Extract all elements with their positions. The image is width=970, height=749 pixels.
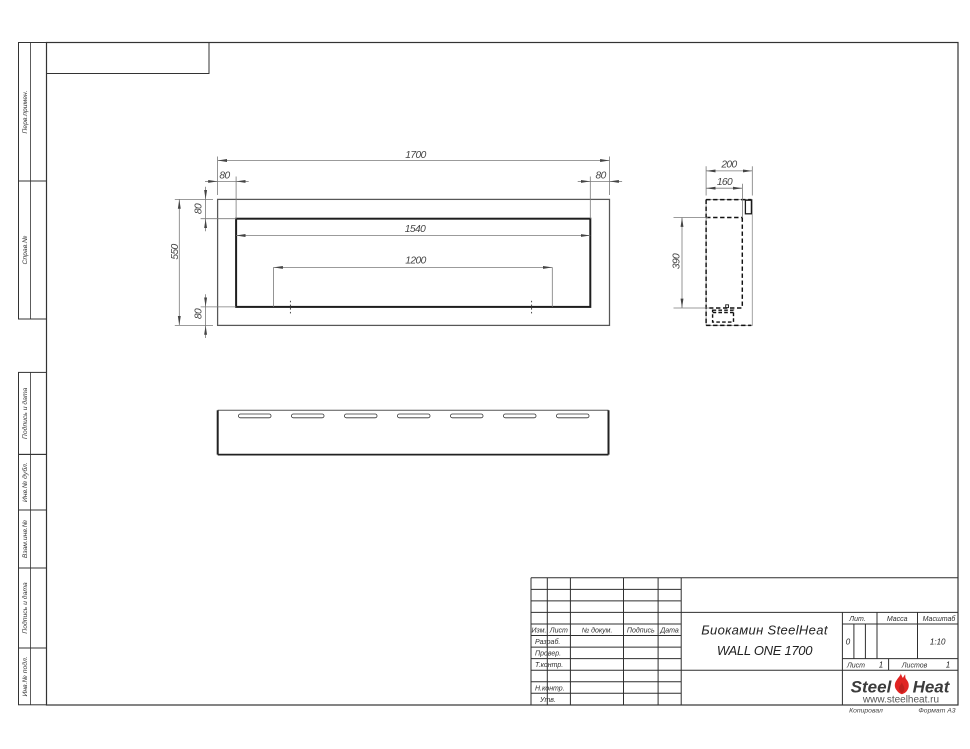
svg-text:1540: 1540 xyxy=(405,224,426,235)
svg-text:Разраб.: Разраб. xyxy=(535,638,560,646)
svg-text:Т.контр.: Т.контр. xyxy=(535,662,563,669)
svg-text:Лист: Лист xyxy=(846,663,865,670)
svg-text:160: 160 xyxy=(717,177,733,188)
svg-text:550: 550 xyxy=(170,243,181,259)
svg-text:Подпись и дата: Подпись и дата xyxy=(21,387,29,439)
svg-text:Изм.: Изм. xyxy=(532,628,547,635)
svg-text:WALL ONE 1700: WALL ONE 1700 xyxy=(717,643,813,658)
svg-text:1200: 1200 xyxy=(405,256,426,267)
svg-text:Провер.: Провер. xyxy=(535,651,561,658)
svg-text:1: 1 xyxy=(879,661,883,670)
svg-text:1: 1 xyxy=(946,661,950,670)
svg-text:Масштаб: Масштаб xyxy=(923,615,957,623)
svg-text:Листов: Листов xyxy=(901,663,928,670)
svg-text:390: 390 xyxy=(672,253,683,269)
svg-text:Взам.инв.№: Взам.инв.№ xyxy=(22,520,29,558)
svg-text:Лит.: Лит. xyxy=(848,616,865,623)
svg-text:80: 80 xyxy=(194,308,205,319)
svg-text:Инв.№ дубл.: Инв.№ дубл. xyxy=(21,462,29,502)
svg-text:Формат А3: Формат А3 xyxy=(918,708,955,715)
svg-text:№ докум.: № докум. xyxy=(582,627,613,635)
svg-text:Дата: Дата xyxy=(659,628,679,635)
svg-text:80: 80 xyxy=(219,171,230,182)
svg-text:1700: 1700 xyxy=(405,150,426,161)
svg-text:Копировал: Копировал xyxy=(849,708,883,715)
svg-text:Подпись: Подпись xyxy=(627,627,655,635)
svg-text:www.steelheat.ru: www.steelheat.ru xyxy=(862,695,939,706)
svg-text:Лист: Лист xyxy=(549,628,568,635)
svg-text:Перв.примен.: Перв.примен. xyxy=(22,90,29,133)
svg-text:200: 200 xyxy=(720,160,737,171)
svg-text:1:10: 1:10 xyxy=(930,638,946,647)
svg-text:Утв.: Утв. xyxy=(539,697,556,704)
svg-text:Справ.№: Справ.№ xyxy=(22,235,29,264)
svg-text:Н.контр.: Н.контр. xyxy=(535,685,565,692)
svg-text:Подпись и дата: Подпись и дата xyxy=(21,582,29,634)
svg-text:80: 80 xyxy=(194,203,205,214)
svg-text:Биокамин SteelHeat: Биокамин SteelHeat xyxy=(701,623,829,638)
svg-text:Масса: Масса xyxy=(887,616,908,623)
svg-text:0: 0 xyxy=(846,638,851,647)
svg-text:Инв.№ подл.: Инв.№ подл. xyxy=(21,656,29,696)
svg-text:80: 80 xyxy=(595,171,606,182)
